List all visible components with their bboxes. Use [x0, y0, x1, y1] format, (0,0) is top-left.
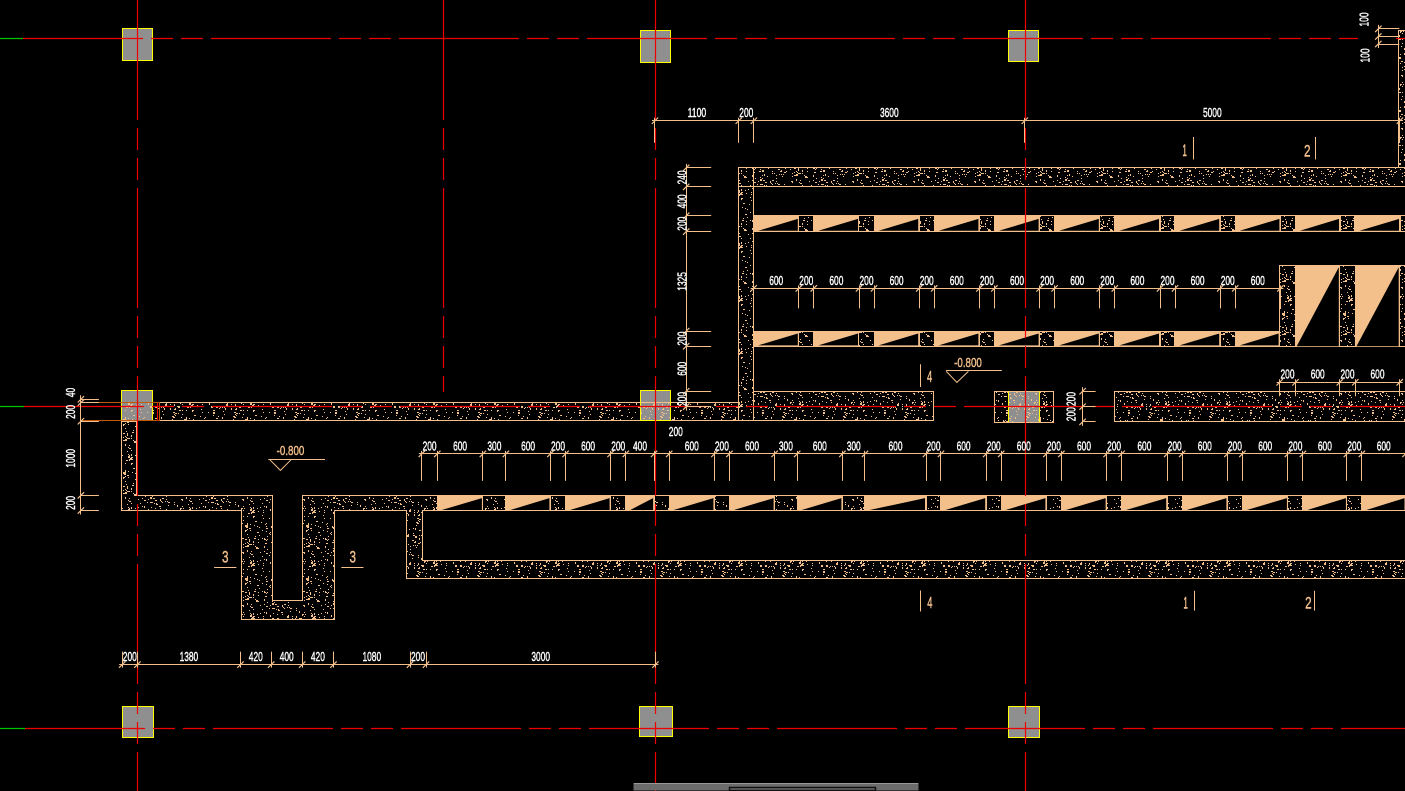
svg-text:200: 200: [63, 405, 78, 419]
svg-text:200: 200: [1161, 273, 1175, 288]
svg-text:1100: 1100: [688, 105, 707, 120]
svg-text:200: 200: [715, 438, 729, 453]
svg-text:3: 3: [222, 548, 229, 567]
svg-text:1000: 1000: [63, 449, 78, 468]
svg-text:200: 200: [423, 438, 437, 453]
svg-text:3000: 3000: [531, 649, 550, 664]
svg-text:600: 600: [950, 273, 964, 288]
svg-text:3: 3: [350, 548, 357, 567]
svg-text:300: 300: [847, 438, 861, 453]
svg-text:600: 600: [1311, 367, 1325, 382]
svg-text:200: 200: [1107, 438, 1121, 453]
svg-text:1325: 1325: [675, 272, 690, 291]
svg-text:400: 400: [633, 438, 647, 453]
svg-text:600: 600: [675, 362, 690, 376]
svg-text:4: 4: [927, 595, 932, 612]
svg-text:600: 600: [1377, 438, 1391, 453]
svg-text:600: 600: [453, 438, 467, 453]
svg-text:600: 600: [1130, 273, 1144, 288]
svg-text:300: 300: [487, 438, 501, 453]
svg-text:-0.800: -0.800: [277, 443, 305, 458]
svg-text:200: 200: [1281, 367, 1295, 382]
svg-text:200: 200: [1047, 438, 1061, 453]
svg-text:200: 200: [675, 217, 690, 231]
svg-text:400: 400: [280, 649, 294, 664]
svg-text:5000: 5000: [1203, 105, 1222, 120]
svg-text:600: 600: [1251, 273, 1265, 288]
svg-text:200: 200: [123, 649, 137, 664]
svg-text:200: 200: [669, 424, 683, 439]
svg-text:200: 200: [1341, 367, 1355, 382]
svg-text:100: 100: [1357, 49, 1372, 63]
svg-text:600: 600: [829, 273, 843, 288]
svg-text:600: 600: [1371, 367, 1385, 382]
svg-text:600: 600: [1198, 438, 1212, 453]
svg-text:200: 200: [611, 438, 625, 453]
svg-text:200: 200: [927, 438, 941, 453]
svg-text:1080: 1080: [363, 649, 382, 664]
svg-text:1380: 1380: [180, 649, 199, 664]
svg-text:100: 100: [1356, 13, 1371, 27]
svg-text:200: 200: [1288, 438, 1302, 453]
svg-text:600: 600: [957, 438, 971, 453]
svg-text:600: 600: [1077, 438, 1091, 453]
svg-text:2: 2: [1305, 594, 1312, 613]
svg-text:40: 40: [63, 388, 78, 397]
svg-text:600: 600: [745, 438, 759, 453]
svg-text:4: 4: [927, 369, 932, 386]
svg-text:600: 600: [889, 438, 903, 453]
svg-text:600: 600: [581, 438, 595, 453]
svg-text:200: 200: [980, 273, 994, 288]
svg-text:1: 1: [1182, 141, 1187, 160]
svg-text:-0.800: -0.800: [954, 355, 982, 370]
svg-text:420: 420: [311, 649, 325, 664]
svg-text:200: 200: [1347, 438, 1361, 453]
svg-text:200: 200: [1228, 438, 1242, 453]
svg-text:200: 200: [551, 438, 565, 453]
svg-text:200: 200: [739, 105, 753, 120]
svg-text:600: 600: [813, 438, 827, 453]
svg-text:200: 200: [1221, 273, 1235, 288]
svg-text:200: 200: [860, 273, 874, 288]
svg-text:200: 200: [1064, 407, 1079, 421]
svg-text:200: 200: [1040, 273, 1054, 288]
svg-text:200: 200: [1064, 392, 1079, 406]
svg-text:600: 600: [1191, 273, 1205, 288]
svg-text:2: 2: [1304, 142, 1311, 161]
svg-text:600: 600: [521, 438, 535, 453]
svg-text:600: 600: [1258, 438, 1272, 453]
svg-text:600: 600: [890, 273, 904, 288]
svg-text:600: 600: [1010, 273, 1024, 288]
svg-text:600: 600: [1070, 273, 1084, 288]
svg-text:400: 400: [675, 194, 690, 208]
svg-text:600: 600: [685, 438, 699, 453]
svg-text:1: 1: [1183, 594, 1188, 613]
svg-text:200: 200: [920, 273, 934, 288]
svg-text:200: 200: [675, 392, 690, 406]
svg-text:300: 300: [779, 438, 793, 453]
svg-text:600: 600: [1017, 438, 1031, 453]
svg-text:600: 600: [1318, 438, 1332, 453]
svg-text:200: 200: [1168, 438, 1182, 453]
svg-text:200: 200: [1100, 273, 1114, 288]
svg-text:240: 240: [675, 170, 690, 184]
svg-text:200: 200: [987, 438, 1001, 453]
svg-text:200: 200: [675, 332, 690, 346]
svg-text:420: 420: [249, 649, 263, 664]
svg-text:3600: 3600: [880, 105, 899, 120]
svg-text:200: 200: [411, 649, 425, 664]
svg-text:200: 200: [63, 496, 78, 510]
svg-text:600: 600: [1137, 438, 1151, 453]
svg-text:600: 600: [769, 273, 783, 288]
svg-text:200: 200: [799, 273, 813, 288]
